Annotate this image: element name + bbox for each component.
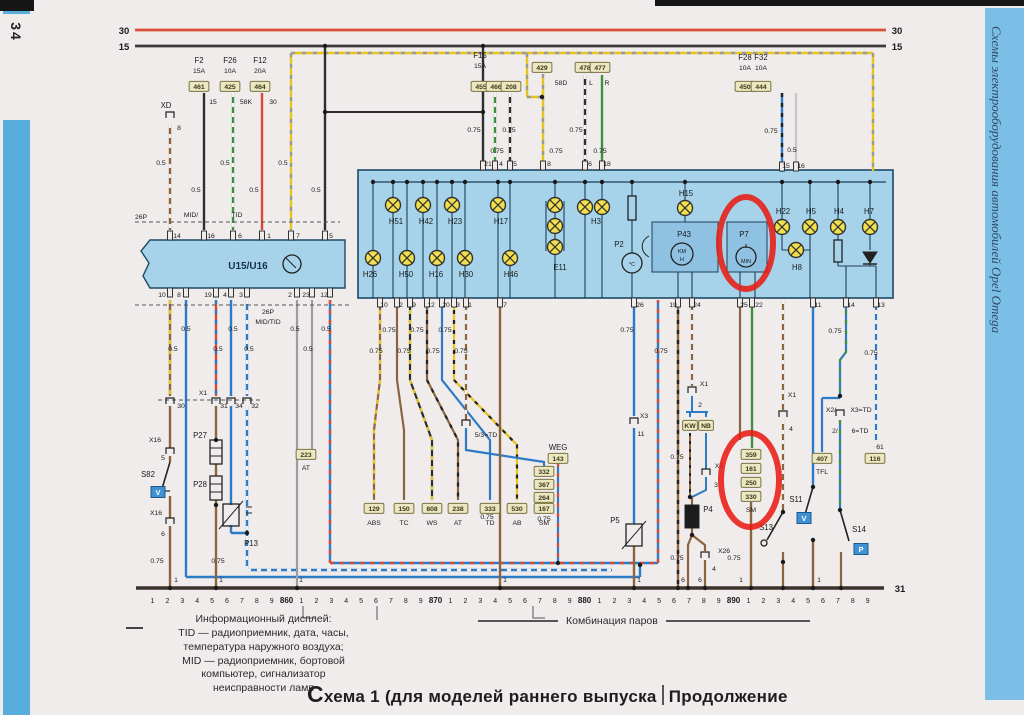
diagram-label: 0.5	[311, 187, 321, 194]
diagram-label: 167	[538, 506, 550, 513]
diagram-label: X3	[640, 413, 649, 420]
diagram-label: 15	[119, 42, 130, 53]
diagram-label: 7	[503, 302, 507, 309]
diagram-label: S14	[852, 525, 867, 534]
diagram-label: 3	[180, 598, 184, 605]
diagram-label: 18	[603, 161, 611, 168]
diagram-label: F28	[738, 53, 751, 62]
diagram-label: V	[801, 514, 806, 523]
diagram-label: 26	[636, 302, 644, 309]
lamp-icon	[491, 198, 506, 213]
lamp-icon	[803, 220, 818, 235]
diagram-label: S11	[789, 495, 802, 504]
diagram-label: 19	[204, 292, 212, 299]
diagram-label: 0.5	[303, 346, 313, 353]
diagram-label: 8	[851, 598, 855, 605]
manual-page: 34 Схемы электрооборудования автомобилей…	[0, 0, 1024, 715]
diagram-label: 0.75	[426, 348, 439, 355]
diagram-label: H26	[363, 270, 377, 279]
resistor-icon	[834, 240, 842, 262]
diagram-label: X26	[718, 548, 730, 555]
diagram-label: 0.75	[670, 454, 683, 461]
diagram-label: H23	[448, 217, 462, 226]
diagram-label: U15/U16	[228, 261, 268, 272]
diagram-label: H46	[504, 270, 518, 279]
diagram-label: SM	[746, 507, 757, 514]
diagram-label: 250	[745, 480, 757, 487]
lamp-icon	[775, 220, 790, 235]
diagram-label: 464	[254, 84, 266, 91]
diagram-label: H4	[834, 207, 845, 216]
diagram-label: 2	[612, 598, 616, 605]
diagram-label: 8	[547, 161, 551, 168]
diagram-label: 0.5	[278, 160, 288, 167]
diagram-label: XD	[161, 101, 172, 110]
diagram-label: 13	[877, 302, 885, 309]
diagram-label: H51	[389, 217, 403, 226]
diagram-label: 0.5	[156, 160, 166, 167]
legend-line: TID — радиоприемник, дата, часы,	[145, 627, 382, 641]
diagram-label: 30	[892, 26, 903, 37]
diagram-label: 5	[359, 598, 363, 605]
diagram-label: MID/	[184, 212, 198, 219]
diagram-label: 15	[892, 42, 903, 53]
diagram-label: 31	[220, 403, 228, 410]
diagram-label: 7	[538, 598, 542, 605]
diagram-label: P5	[610, 516, 620, 525]
diagram-label: 3	[239, 292, 243, 299]
diagram-label: 530	[511, 506, 523, 513]
lamp-icon	[386, 198, 401, 213]
lamp-icon	[678, 201, 693, 216]
diagram-label: 143	[552, 456, 564, 463]
lamp-icon	[548, 198, 563, 213]
diagram-label: H30	[459, 270, 474, 279]
diagram-label: 0.75	[593, 148, 606, 155]
lamp-icon	[595, 200, 610, 215]
diagram-label: 1	[637, 577, 641, 584]
diagram-label: 31	[895, 584, 906, 595]
diagram-label: 5	[806, 598, 810, 605]
diagram-label: 20A	[254, 68, 267, 75]
diagram-label: 0.5	[213, 346, 223, 353]
diagram-label: 0.75	[620, 327, 633, 334]
diagram-label: 461	[193, 84, 205, 91]
diagram-label: 0.75	[382, 327, 395, 334]
diagram-label: 0.5	[290, 326, 300, 333]
diagram-label: P27	[193, 431, 207, 440]
diagram-label: ABS	[367, 520, 381, 527]
diagram-label: 3	[776, 598, 780, 605]
diagram-label: 4	[195, 598, 199, 605]
diagram-label: 359	[745, 452, 757, 459]
page-title: Схема 1 (для моделей раннего выпуска Про…	[307, 681, 788, 708]
diagram-label: 6	[523, 598, 527, 605]
cluster-caption: Комбинация паров	[566, 615, 658, 627]
diagram-label: 4	[499, 161, 503, 168]
diagram-label: TFL	[816, 469, 828, 476]
diagram-label: 0.5	[249, 187, 259, 194]
diagram-label: 30	[177, 403, 185, 410]
diagram-label: P2	[614, 240, 624, 249]
diagram-label: 860	[280, 596, 294, 605]
diagram-label: 0.75	[410, 327, 423, 334]
coil-icon	[210, 476, 222, 500]
diagram-label: 11	[637, 431, 644, 438]
diagram-label: 4	[712, 566, 716, 573]
diagram-label: 1	[174, 577, 178, 584]
diagram-label: 8	[404, 598, 408, 605]
diagram-label: 8	[553, 598, 557, 605]
diagram-label: 10	[158, 292, 166, 299]
diagram-label: 264	[538, 495, 550, 502]
lamp-icon	[366, 251, 381, 266]
diagram-label: 1	[219, 577, 223, 584]
diagram-label: H5	[806, 207, 817, 216]
diagram-label: 1	[503, 577, 507, 584]
diagram-label: 5	[329, 233, 333, 240]
switch-contact	[761, 540, 767, 546]
diagram-label: 6=TD	[852, 428, 869, 435]
diagram-label: 1	[739, 577, 743, 584]
diagram-label: 7	[389, 598, 393, 605]
diagram-label: 0.75	[397, 348, 410, 355]
diagram-label: 333	[484, 506, 496, 513]
legend-dash	[126, 627, 143, 629]
diagram-label: 2	[314, 598, 318, 605]
lamp-icon	[548, 219, 563, 234]
diagram-label: 0.5	[181, 326, 191, 333]
diagram-label: 15A	[193, 68, 206, 75]
diagram-label: 0.75	[764, 128, 777, 135]
diagram-label: 0.5	[787, 147, 797, 154]
diagram-label: 5	[513, 161, 517, 168]
lamp-icon	[430, 251, 445, 266]
lamp-icon	[458, 251, 473, 266]
diagram-label: 6	[225, 598, 229, 605]
diagram-label: 0.75	[864, 350, 877, 357]
diagram-label: X3=TD	[850, 407, 871, 414]
lamp-icon	[789, 243, 804, 258]
diagram-label: 208	[505, 84, 517, 91]
diagram-label: 15	[782, 163, 790, 170]
diagram-label: 1	[151, 598, 155, 605]
diagram-label: 3	[478, 598, 482, 605]
diagram-label: AT	[454, 520, 462, 527]
diagram-label: °C	[629, 262, 635, 268]
diagram-label: 9	[270, 598, 274, 605]
diagram-label: H	[680, 257, 684, 263]
diagram-label: 3	[456, 302, 460, 309]
diagram-label: 1	[300, 598, 304, 605]
diagram-label: P	[858, 545, 863, 554]
diagram-label: H15	[679, 189, 694, 198]
lamp-icon	[831, 220, 846, 235]
diagram-label: X1	[700, 381, 709, 388]
diagram-label: 9	[419, 598, 423, 605]
diagram-label: 7	[296, 233, 300, 240]
diagram-label: WS	[427, 520, 438, 527]
diagram-label: 20	[442, 302, 450, 309]
diagram-label: 3	[714, 482, 718, 489]
lamp-icon	[400, 251, 415, 266]
diagram-label: E11	[553, 263, 566, 272]
diagram-label: TD	[485, 520, 494, 527]
diagram-label: 12	[427, 302, 435, 309]
diagram-label: 0.75	[480, 514, 493, 521]
diagram-label: 0.75	[467, 127, 480, 134]
diagram-label: 7	[687, 598, 691, 605]
diagram-label: 0.5	[244, 346, 254, 353]
diagram-label: 8	[702, 598, 706, 605]
diagram-label: 407	[816, 456, 828, 463]
diagram-label: 9	[412, 302, 416, 309]
diagram-label: 15	[209, 99, 217, 106]
diagram-label: 6	[161, 531, 165, 538]
diagram-label: 150	[398, 506, 410, 513]
diagram-label: MIN	[741, 259, 751, 265]
diagram-label: 30	[119, 26, 130, 37]
diagram-label: 0.5	[191, 187, 201, 194]
diagram-label: 4	[642, 598, 646, 605]
diagram-label: 58D	[555, 80, 568, 87]
diagram-label: P7	[739, 230, 749, 239]
diagram-label: 1	[817, 577, 821, 584]
diagram-label: 0.75	[537, 516, 550, 523]
diagram-label: AB	[512, 520, 522, 527]
diagram-label: 477	[594, 65, 606, 72]
coil-icon	[210, 440, 222, 464]
diagram-label: 4	[493, 598, 497, 605]
diagram-label: 116	[870, 456, 881, 463]
diagram-label: 478	[579, 65, 591, 72]
diagram-label: 367	[538, 482, 550, 489]
diagram-label: F12	[253, 56, 266, 65]
diagram-label: 0.75	[569, 127, 582, 134]
diagram-label: 425	[224, 84, 236, 91]
diagram-label: H42	[419, 217, 433, 226]
diagram-label: 129	[368, 506, 380, 513]
diagram-label: R	[605, 80, 610, 87]
lamp-icon	[863, 220, 878, 235]
diagram-label: H22	[776, 207, 790, 216]
diagram-label: 4	[789, 426, 793, 433]
legend-line: MID — радиоприемник, бортовой	[145, 655, 382, 669]
diagram-label: P28	[193, 480, 207, 489]
diagram-label: 21	[484, 161, 492, 168]
diagram-label: 466	[490, 84, 502, 91]
diagram-label: X1	[788, 392, 797, 399]
diagram-label: 25	[740, 302, 748, 309]
diagram-label: F15	[473, 51, 487, 60]
diagram-label: 870	[429, 596, 443, 605]
diagram-labels: 3015301531F2F26F1215A10A20A4614254641558…	[119, 26, 906, 605]
diagram-label: 2/	[832, 428, 838, 435]
resistor-icon	[628, 196, 636, 220]
diagram-label: 5/3=TD	[475, 432, 498, 439]
diagram-label: V	[155, 488, 160, 497]
diagram-label: 14	[173, 233, 181, 240]
diagram-label: 10A	[755, 65, 768, 72]
diagram-label: X16	[150, 510, 162, 517]
diagram-label: 5	[657, 598, 661, 605]
diagram-label: MID/TID	[255, 319, 280, 326]
diagram-label: 1	[449, 598, 453, 605]
diagram-label: 330	[745, 494, 757, 501]
diagram-label: X1	[199, 390, 208, 397]
diagram-label: 3	[627, 598, 631, 605]
diagram-label: 0.75	[828, 328, 841, 335]
diagram-label: 5	[161, 455, 165, 462]
diagram-label: KW	[684, 423, 696, 430]
wiring-diagram: 3015301531F2F26F1215A10A20A4614254641558…	[0, 0, 1024, 715]
diagram-label: 161	[745, 466, 757, 473]
diagram-label: 0.75	[369, 348, 382, 355]
diagram-label: 26P	[135, 214, 148, 221]
diagram-label: 450	[739, 84, 751, 91]
lamp-icon	[503, 251, 518, 266]
diagram-label: 22	[755, 302, 763, 309]
legend-line: температура наружного воздуха;	[145, 641, 382, 655]
diagram-label: 1	[747, 598, 751, 605]
diagram-label: 32	[251, 403, 259, 410]
diagram-label: 9	[717, 598, 721, 605]
diagram-label: 11	[814, 302, 821, 309]
diagram-label: P43	[677, 230, 691, 239]
diagram-label: 6	[238, 233, 242, 240]
diagram-label: 890	[727, 596, 741, 605]
diagram-label: 0.5	[220, 160, 230, 167]
diagram-label: 6	[821, 598, 825, 605]
diagram-label: 61	[876, 444, 884, 451]
diagram-label: 0.5	[168, 346, 178, 353]
diagram-label: KM	[678, 249, 687, 255]
diagram-label: 19	[669, 302, 677, 309]
title-divider	[662, 685, 664, 705]
diagram-label: 6	[374, 598, 378, 605]
diagram-label: 2	[399, 302, 403, 309]
diagram-label: 238	[452, 506, 464, 513]
diagram-label: 16	[207, 233, 215, 240]
caption-rule-left	[478, 620, 558, 622]
diagram-label: 8	[177, 125, 181, 132]
diagram-label: 5	[508, 598, 512, 605]
diagram-label: 455	[475, 84, 487, 91]
diagram-label: 1	[267, 233, 271, 240]
diagram-label: L	[589, 80, 593, 87]
diagram-label: 7	[836, 598, 840, 605]
diagram-label: 58K	[240, 99, 253, 106]
diagram-label: 1	[299, 577, 303, 584]
diagram-label: 24	[693, 302, 701, 309]
diagram-label: 7	[240, 598, 244, 605]
diagram-label: 0.75	[549, 148, 562, 155]
diagram-label: H8	[792, 263, 802, 272]
diagram-label: 10A	[224, 68, 237, 75]
diagram-label: 223	[300, 452, 312, 459]
diagram-label: WEG	[549, 443, 568, 452]
diagram-label: TID	[232, 212, 243, 219]
diagram-label: H7	[864, 207, 874, 216]
diagram-label: 332	[538, 469, 550, 476]
diagram-label: 0.75	[150, 558, 163, 565]
diagram-label: 0.75	[727, 555, 740, 562]
p4-sensor-box	[685, 505, 699, 528]
diagram-label: 10A	[739, 65, 752, 72]
diagram-label: 10	[380, 302, 388, 309]
caption-rule-right	[666, 620, 810, 622]
diagram-label: 0.75	[670, 555, 683, 562]
diagram-label: H50	[399, 270, 414, 279]
diagram-label: AT	[302, 465, 310, 472]
cluster-caption-row: Комбинация паров	[478, 615, 810, 627]
lamp-icon	[548, 240, 563, 255]
diagram-label: 6	[588, 161, 592, 168]
diagram-label: 429	[536, 65, 548, 72]
diagram-label: X16	[149, 437, 161, 444]
diagram-label: 2	[165, 598, 169, 605]
diagram-label: 6	[698, 577, 702, 584]
diagram-label: 2	[698, 402, 702, 409]
diagram-label: 2	[761, 598, 765, 605]
diagram-label: F26	[223, 56, 236, 65]
diagram-label: 0.5	[228, 326, 238, 333]
title-right: Продолжение	[669, 687, 788, 707]
diagram-label: 0.75	[490, 148, 503, 155]
diagram-label: 4	[344, 598, 348, 605]
diagram-label: 0.75	[211, 558, 224, 565]
diagram-label: 0.75	[502, 127, 515, 134]
diagram-label: 16	[797, 163, 805, 170]
diagram-label: P4	[703, 505, 713, 514]
diagram-label: 6	[672, 598, 676, 605]
diagram-label: 4	[791, 598, 795, 605]
diagram-label: 5	[210, 598, 214, 605]
diagram-label: H3	[591, 217, 601, 226]
lamp-icon	[445, 198, 460, 213]
diagram-label: 880	[578, 596, 592, 605]
lamp-icon	[578, 200, 593, 215]
diagram-label: H16	[429, 270, 443, 279]
diagram-label: 34	[235, 403, 243, 410]
diagram-label: NB	[701, 423, 711, 430]
diagram-label: 15A	[474, 63, 487, 70]
diagram-label: 4	[223, 292, 227, 299]
diagram-label: 6	[681, 577, 685, 584]
diagram-label: 9	[568, 598, 572, 605]
diagram-label: 808	[426, 506, 438, 513]
diagram-label: 0.75	[438, 327, 451, 334]
diagram-label: 8	[177, 292, 181, 299]
diagram-label: 12	[320, 292, 328, 299]
diagram-label: 2	[463, 598, 467, 605]
diagram-label: S82	[141, 470, 155, 479]
diagram-label: 2	[288, 292, 292, 299]
diagram-label: 30	[269, 99, 277, 106]
diagram-label: 444	[755, 84, 767, 91]
diagram-label: 0.75	[454, 348, 467, 355]
diagram-label: TC	[399, 520, 408, 527]
diagram-label: 23	[302, 292, 310, 299]
diagram-label: 8	[255, 598, 259, 605]
diagram-label: H17	[494, 217, 508, 226]
diagram-label: 1	[598, 598, 602, 605]
diagram-label: 0.5	[321, 326, 331, 333]
legend-line: Информационный дисплей:	[145, 613, 382, 627]
diagram-label: 26P	[262, 309, 275, 316]
diagram-label: F2	[194, 56, 203, 65]
diagram-label: 14	[847, 302, 855, 309]
